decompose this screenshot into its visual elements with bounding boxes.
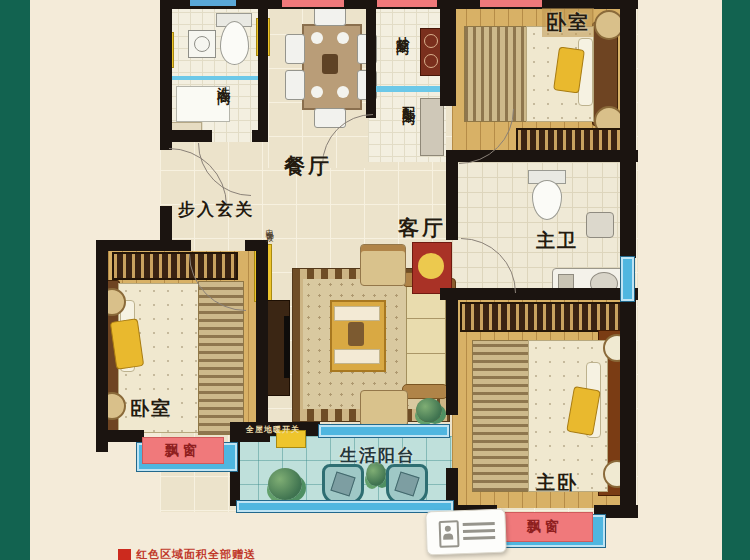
- wall: [620, 298, 636, 510]
- wall: [620, 0, 636, 258]
- master-bedroom-label: 主卧: [536, 470, 578, 496]
- id-card-icon: [439, 520, 460, 548]
- cutoff-label-bar-red: [480, 0, 542, 7]
- stove-burner: [424, 54, 438, 68]
- armchair: [360, 244, 406, 286]
- dining-label: 餐厅: [284, 152, 332, 180]
- wall: [96, 240, 191, 251]
- wall: [366, 0, 376, 118]
- wall: [440, 0, 456, 106]
- tv-screen: [284, 316, 290, 378]
- balcony-window: [236, 500, 454, 513]
- bath-window: [620, 256, 635, 302]
- id-card-body: [443, 533, 453, 539]
- prep-counter: [420, 98, 444, 156]
- dining-chair: [285, 70, 305, 100]
- bay-window-label-text: 飘窗: [527, 518, 563, 536]
- entry-label: 步入玄关: [178, 198, 254, 221]
- wash-basin: [322, 464, 364, 504]
- table-runner: [334, 349, 380, 364]
- balcony-top-window: [318, 424, 450, 438]
- table-decor: [348, 322, 364, 346]
- wall: [258, 0, 268, 142]
- round-table: [418, 253, 444, 279]
- sofa-armrest: [402, 384, 448, 399]
- floor-plan-canvas: 飘窗 飘窗 电视背景 全屋地暖开关 餐厅 炒菜间 配菜间 卧室 洗衣间 步入玄关…: [0, 0, 750, 560]
- balcony-label: 生活阳台: [340, 444, 416, 467]
- kitchen-pass-window: [368, 86, 440, 92]
- stove-burner: [424, 34, 438, 48]
- bed-blanket-striped: [464, 26, 528, 122]
- tv-wall-annotation: 电视背景: [264, 222, 273, 230]
- left-green-border: [0, 0, 30, 560]
- badge-line: [463, 522, 495, 526]
- watermark-badge: [425, 509, 506, 556]
- plant: [416, 398, 442, 422]
- toilet-bowl: [220, 21, 249, 65]
- wardrobe: [460, 302, 624, 332]
- cutoff-label-bar-red: [377, 0, 437, 7]
- plate: [311, 32, 323, 44]
- badge-line: [463, 536, 495, 540]
- wall: [446, 162, 458, 240]
- bedroom-bl-label: 卧室: [130, 396, 172, 422]
- dining-chair: [314, 6, 346, 26]
- bay-window-label-right: 飘窗: [497, 512, 593, 542]
- wall: [252, 130, 268, 142]
- plate: [311, 86, 323, 98]
- cooking-label: 炒菜间: [393, 26, 411, 32]
- living-label: 客厅: [398, 214, 446, 242]
- wall: [166, 130, 212, 142]
- bed-blanket-striped: [472, 340, 530, 492]
- balcony-plant: [268, 468, 302, 500]
- right-green-border: [722, 0, 750, 560]
- cutoff-label-bar-blue: [190, 0, 236, 6]
- laundry-label: 洗衣间: [214, 76, 232, 82]
- wash-basin: [386, 464, 428, 504]
- master-bath-label: 主卫: [536, 228, 578, 254]
- table-centerpiece: [322, 54, 338, 74]
- wall: [160, 0, 172, 150]
- id-card-head: [445, 526, 451, 532]
- heating-switch-annotation: 全屋地暖开关: [246, 424, 300, 435]
- plate: [337, 86, 349, 98]
- legend-text: 红色区域面积全部赠送: [136, 547, 256, 560]
- table-runner: [334, 306, 380, 321]
- wall-cabinet: [586, 212, 614, 238]
- badge-line: [463, 529, 495, 533]
- wall: [245, 240, 268, 251]
- bedroom-tr-label: 卧室: [542, 8, 594, 37]
- wall: [256, 251, 268, 432]
- laundry-counter: [176, 86, 230, 122]
- prep-label: 配菜间: [399, 96, 417, 102]
- plate: [337, 32, 349, 44]
- wall: [446, 300, 458, 415]
- wall: [96, 240, 108, 452]
- legend-swatch: [118, 549, 131, 560]
- cutoff-label-bar-red: [282, 0, 344, 7]
- wall: [96, 430, 144, 442]
- dining-chair: [285, 34, 305, 64]
- washing-machine-drum: [194, 36, 210, 52]
- bay-window-label-left: 飘窗: [142, 437, 224, 464]
- bay-window-label-text: 飘窗: [165, 442, 201, 460]
